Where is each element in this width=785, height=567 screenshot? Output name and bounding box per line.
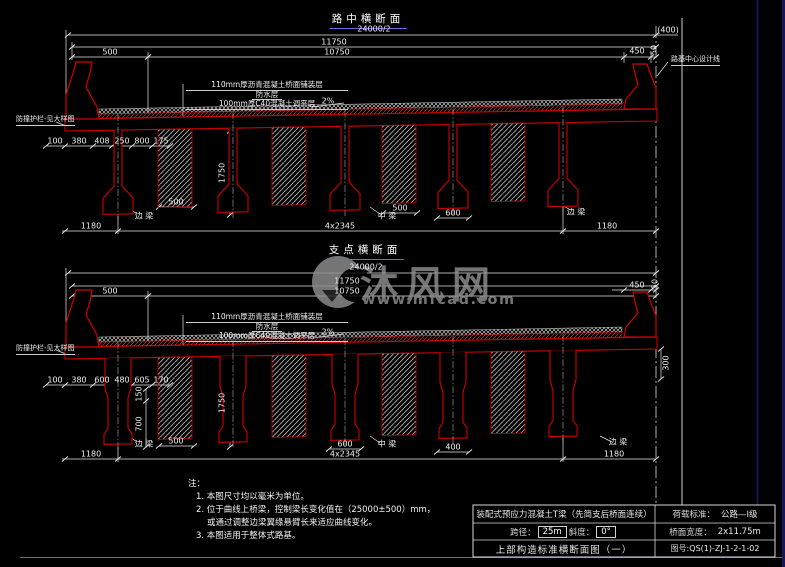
titleblock-number: 图号: QS(1)-ZJ-1-2-1-02 <box>655 540 775 557</box>
dim-label: 800 <box>134 137 149 146</box>
dim-label: 11750 <box>334 277 359 286</box>
dim-label: 600 <box>337 440 352 449</box>
note-item: 或通过调整边梁翼缘悬臂长来适应曲线变化。 <box>207 516 377 528</box>
beam-label-edge: 边 梁 <box>609 437 628 448</box>
barrier-label: 防撞护栏-见大样图 <box>16 343 75 355</box>
titleblock-load: 荷载标准： 公路—I级 <box>655 505 775 523</box>
dim-label: 4x2345 <box>330 450 360 459</box>
dim-label: 600 <box>94 376 109 385</box>
dim-label: 500 <box>102 287 117 296</box>
skew-value: 0° <box>596 526 616 538</box>
width-label: 桥面宽度： <box>669 526 712 538</box>
titleblock-project: 装配式预应力混凝土T梁（先简支后桥面连续） <box>473 505 655 523</box>
dim-label: 4x2345 <box>325 222 355 231</box>
dim-label: 700 <box>135 416 144 431</box>
dim-label: 450 <box>629 47 644 56</box>
dim-label: 50 <box>651 279 660 289</box>
dim-label: 1180 <box>604 450 624 459</box>
beam-label-edge: 边 梁 <box>135 439 154 450</box>
dim-label: 500 <box>168 198 183 207</box>
dim-label: 380 <box>71 137 86 146</box>
dim-label: 100 <box>47 376 62 385</box>
dim-label: 24000/2 <box>357 25 390 34</box>
dim-label: 480 <box>114 376 129 385</box>
number-label: 图号: <box>671 543 690 554</box>
beam-label-edge: 边 梁 <box>567 207 586 218</box>
span-label: 跨径： <box>510 526 536 538</box>
titleblock-span-skew: 跨径： 25m 斜度： 0° <box>473 523 655 540</box>
cad-drawing-sheet: 沐风网 www.mfcad.com 路中横断面 24000/2 11750 10… <box>0 0 785 567</box>
note-item: 1. 本图尺寸均以毫米为单位。 <box>196 490 309 502</box>
dim-label: 11750 <box>321 38 346 47</box>
dim-label: 1180 <box>597 222 617 231</box>
dim-label: 50 <box>650 45 659 55</box>
slope-label: 2% <box>322 97 335 106</box>
skew-label: 斜度： <box>569 526 595 538</box>
dim-label: 1180 <box>81 222 101 231</box>
dim-label: 1750 <box>218 393 227 413</box>
barrier-label: 防撞护栏-见大样图 <box>16 114 75 126</box>
load-value: 公路—I级 <box>721 508 758 520</box>
slope-label: 2% <box>322 328 335 337</box>
dim-label: (400) <box>657 26 679 35</box>
centerline-label: 路基中心设计线 <box>671 54 720 66</box>
titleblock-drawing-title: 上部构造标准横断面图（一） <box>473 540 655 557</box>
notes-heading: 注： <box>188 477 205 489</box>
dim-label: 300 <box>662 355 671 370</box>
width-value: 2x11.75m <box>718 527 761 537</box>
dim-label: 150 <box>135 386 144 401</box>
dim-label: 10750 <box>324 48 349 57</box>
dim-label: 100 <box>47 137 62 146</box>
dim-label: 380 <box>71 376 86 385</box>
span-value: 25m <box>538 526 567 538</box>
dim-label: 10750 <box>334 287 359 296</box>
section-title-support: 支点横断面 <box>327 242 404 260</box>
dim-label: 600 <box>445 209 460 218</box>
dim-label: 170 <box>153 376 168 385</box>
dim-label: 500 <box>102 48 117 57</box>
dim-label: 24000/2 <box>349 263 382 272</box>
dim-label: 450 <box>629 281 644 290</box>
dim-label: 500 <box>168 437 183 446</box>
dim-label: 400 <box>445 443 460 452</box>
load-label: 荷载标准： <box>672 508 715 520</box>
dim-label: 1750 <box>218 163 227 183</box>
dim-label: 408 <box>94 137 109 146</box>
beam-label-edge: 边 梁 <box>135 211 154 222</box>
titleblock-width: 桥面宽度： 2x11.75m <box>655 523 775 540</box>
note-item: 3. 本图适用于整体式路基。 <box>196 529 300 541</box>
note-item: 2. 位于曲线上桥梁，控制梁长变化值在（25000±500）mm， <box>196 503 435 515</box>
dim-label: 605 <box>134 376 149 385</box>
beam-label-mid: 中 梁 <box>378 439 397 450</box>
dim-label: 250 <box>114 137 129 146</box>
dim-label: 175 <box>153 137 168 146</box>
number-value: QS(1)-ZJ-1-2-1-02 <box>689 544 759 553</box>
watermark: 沐风网 www.mfcad.com <box>0 0 785 567</box>
watermark-url: www.mfcad.com <box>362 292 516 308</box>
beam-label-mid: 中 梁 <box>378 211 397 222</box>
dim-label: 1180 <box>81 450 101 459</box>
